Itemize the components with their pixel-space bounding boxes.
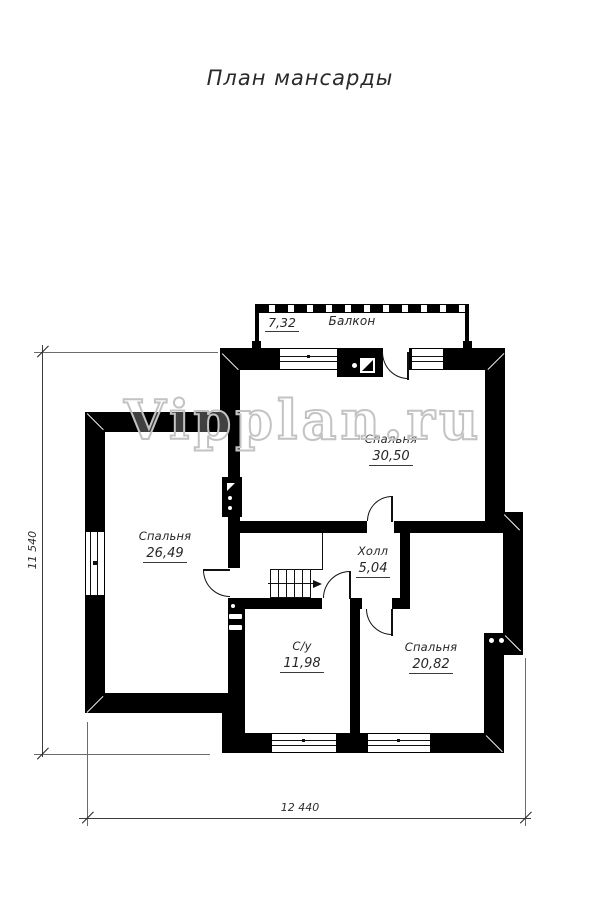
stairs-landing-line-h bbox=[310, 569, 322, 570]
room-name: Спальня bbox=[355, 433, 427, 446]
room-area: 11,98 bbox=[280, 657, 323, 674]
stairs-arrow-icon bbox=[313, 580, 322, 588]
vent-lower-dot bbox=[231, 604, 235, 608]
vent-lower-slot2 bbox=[229, 625, 242, 630]
room-label-bedroom2: Спальня 26,49 bbox=[130, 530, 200, 563]
wall-hall-right bbox=[400, 533, 410, 598]
stairs-landing-line-v bbox=[322, 533, 323, 570]
room-label-bedroom3: Спальня 20,82 bbox=[398, 641, 464, 674]
balcony-door-leaf bbox=[407, 352, 409, 380]
wall-hall-bottom-b bbox=[350, 598, 362, 609]
dim-ext-bottom bbox=[34, 754, 210, 755]
balcony-door-swing bbox=[382, 352, 408, 379]
door-swing-hall bbox=[367, 496, 392, 521]
room-label-bedroom1: Спальня 30,50 bbox=[355, 433, 427, 466]
stairs-arrow-line bbox=[268, 583, 315, 584]
room-area: 20,82 bbox=[409, 658, 452, 675]
balcony-area-label: 7,32 bbox=[262, 313, 302, 332]
door-swing-bedroom3 bbox=[366, 609, 392, 635]
window-bottom-2 bbox=[368, 733, 430, 753]
room-name: Спальня bbox=[398, 641, 464, 654]
window-top-2 bbox=[412, 348, 443, 370]
window-left bbox=[85, 532, 105, 595]
room-area: 5,04 bbox=[356, 562, 391, 579]
balcony-railing bbox=[255, 304, 469, 313]
window-bottom-1 bbox=[272, 733, 336, 753]
dim-ext-top bbox=[34, 352, 218, 353]
room-area: 26,49 bbox=[143, 547, 186, 564]
dim-label-vertical: 11 540 bbox=[27, 520, 39, 580]
door-opening-hall bbox=[367, 521, 394, 533]
room-label-hall: Холл 5,04 bbox=[345, 545, 401, 578]
wall-bathroom-right bbox=[350, 609, 360, 733]
door-leaf-bedroom2 bbox=[203, 569, 230, 571]
room-name: Спальня bbox=[130, 530, 200, 543]
balcony-name-label: Балкон bbox=[327, 315, 377, 328]
floor-plan-canvas: План мансарды 7,32 Балкон bbox=[0, 0, 600, 921]
room-name: С/у bbox=[272, 640, 332, 653]
chimney-dot1 bbox=[489, 638, 494, 643]
wall-right-upper bbox=[485, 348, 505, 521]
door-swing-bedroom2 bbox=[203, 570, 230, 597]
vent-shared-triangle-icon bbox=[227, 483, 235, 491]
wall-hall-bottom-c bbox=[392, 598, 410, 609]
vent-shared-dot2 bbox=[228, 506, 232, 510]
dim-line-vertical bbox=[42, 345, 43, 757]
room-area: 30,50 bbox=[369, 450, 412, 467]
dim-label-horizontal: 12 440 bbox=[270, 802, 330, 814]
vent-dot bbox=[352, 363, 357, 368]
dim-line-horizontal bbox=[79, 818, 531, 819]
room-label-bathroom: С/у 11,98 bbox=[272, 640, 332, 673]
dim-ext-right bbox=[525, 658, 526, 826]
wall-bottom-leftwing bbox=[85, 693, 240, 713]
balcony-area-value: 7,32 bbox=[265, 316, 299, 332]
wall-hall-bottom-a bbox=[240, 598, 322, 609]
room-name: Холл bbox=[345, 545, 401, 558]
wall-top-leftwing bbox=[85, 412, 240, 432]
wall-bottom-main bbox=[228, 733, 504, 753]
vent-lower-slot1 bbox=[229, 614, 242, 619]
dim-ext-left bbox=[87, 722, 88, 826]
door-leaf-bedroom3 bbox=[391, 609, 393, 636]
window-top-1 bbox=[280, 348, 337, 370]
vent-shared-dot1 bbox=[228, 496, 232, 500]
vent-triangle-icon bbox=[362, 360, 373, 371]
door-leaf-hall bbox=[391, 496, 393, 522]
chimney-dot2 bbox=[499, 638, 504, 643]
vent-square bbox=[360, 358, 375, 373]
page-title: План мансарды bbox=[207, 66, 394, 90]
